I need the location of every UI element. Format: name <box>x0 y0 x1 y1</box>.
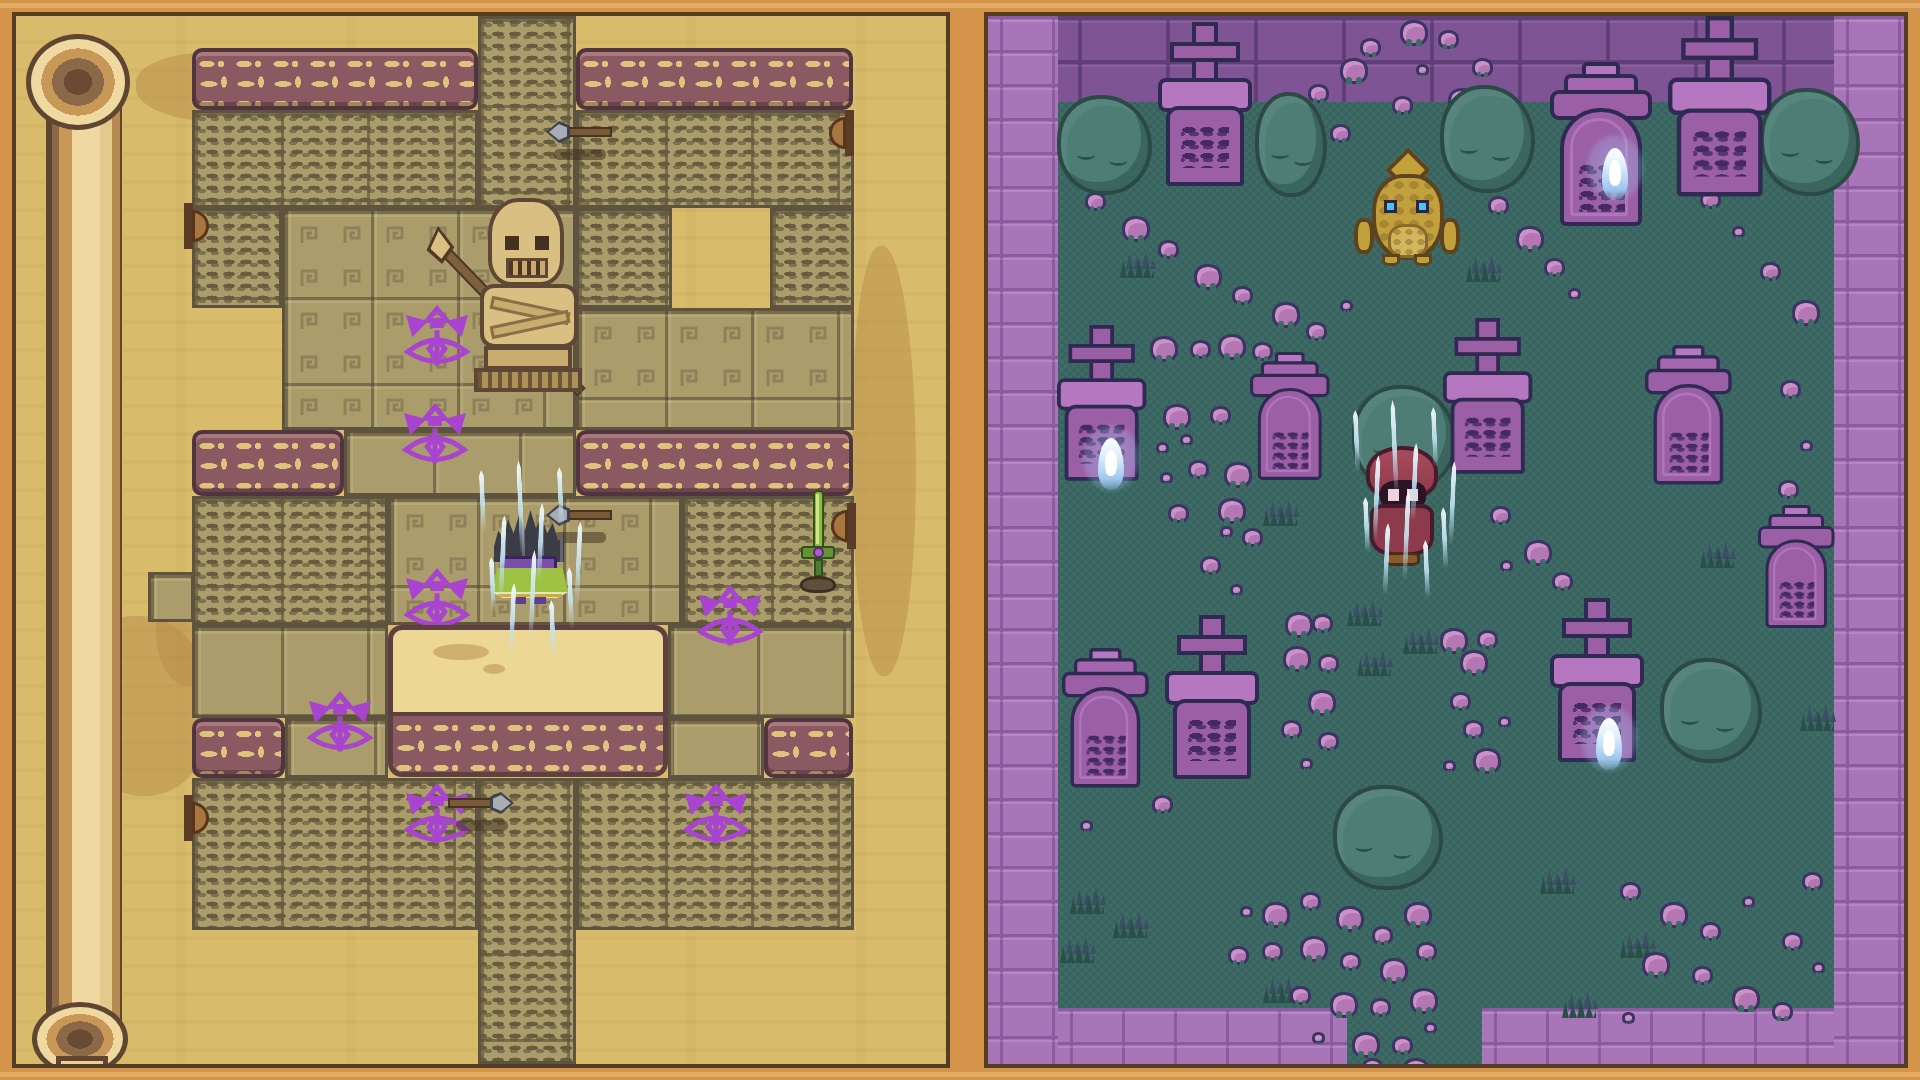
temple-map-panel[interactable] <box>12 12 950 1068</box>
cross-horizontal <box>1562 618 1632 638</box>
mushroom <box>1220 526 1233 538</box>
mushroom <box>1552 572 1573 591</box>
grass-tuft-shadow <box>1568 987 1598 1009</box>
hieroglyph-wall-band <box>576 430 853 496</box>
grave-slab <box>1677 108 1763 196</box>
mushroom <box>1156 442 1169 454</box>
grave-slab <box>1173 699 1251 779</box>
meander-icon <box>342 268 362 288</box>
meander-icon <box>299 268 319 288</box>
mushroom <box>1210 406 1231 425</box>
scroll-roll-top <box>26 34 130 130</box>
grass-tuft <box>1700 542 1738 568</box>
graveyard-wall <box>1058 1008 1347 1064</box>
grave-engraving <box>1693 128 1746 176</box>
arrow-head-icon <box>546 121 570 143</box>
grave-slab <box>1451 398 1525 474</box>
arrow-shadow <box>456 820 508 831</box>
meander-icon <box>679 325 699 345</box>
meander-icon <box>385 268 405 288</box>
grass-tuft <box>1466 256 1504 282</box>
grass-tuft <box>1070 888 1108 914</box>
mushroom <box>1285 612 1313 638</box>
meander-icon <box>299 311 319 331</box>
grass-tuft <box>1120 252 1158 278</box>
mushroom <box>1308 84 1329 103</box>
arrow-shadow <box>554 149 606 160</box>
grass-tuft-shadow <box>1409 623 1439 645</box>
mushroom <box>1500 560 1513 572</box>
statue-mouth <box>506 258 548 278</box>
sword-mound <box>800 576 836 593</box>
mushroom <box>1194 264 1222 290</box>
mushroom <box>1080 820 1093 832</box>
temple-floor-tiles <box>668 718 764 778</box>
mushroom <box>1163 404 1191 430</box>
eye-sigil-icon <box>297 689 383 767</box>
graveyard-wall <box>988 16 1058 1064</box>
mushroom <box>1622 1012 1635 1024</box>
gravestone-ornate <box>1250 352 1331 483</box>
statue-skirt <box>484 346 572 370</box>
mushroom <box>1168 504 1189 523</box>
gravestone-cross <box>1158 22 1258 190</box>
grass-tuft-shadow <box>1363 645 1393 667</box>
wisp-flame <box>1068 408 1154 508</box>
mushroom <box>1424 1022 1437 1034</box>
meander-icon <box>620 599 640 619</box>
platform-smudge <box>433 644 489 660</box>
cross-horizontal <box>1681 38 1758 60</box>
mushroom <box>1488 196 1509 215</box>
meander-icon <box>620 513 640 533</box>
mushroom <box>1524 540 1552 566</box>
grave-engraving <box>1181 124 1229 168</box>
mushroom <box>1340 952 1361 971</box>
frame-highlight-bottom <box>0 1072 1920 1077</box>
temple-floor-tiles <box>770 208 854 308</box>
mushroom <box>1336 906 1364 932</box>
grave-slab <box>1166 106 1244 186</box>
mushroom <box>1472 58 1493 77</box>
door-handle-knob <box>192 802 209 834</box>
door-handle-base <box>845 110 854 156</box>
meander-icon <box>593 325 613 345</box>
statue-guardian[interactable] <box>452 188 592 394</box>
meander-icon <box>808 325 828 345</box>
duck-belly <box>1388 224 1428 258</box>
bush-leaf-mark <box>1492 151 1510 161</box>
duck-wing <box>1354 218 1374 254</box>
meander-icon <box>342 225 362 245</box>
mushroom <box>1760 262 1781 281</box>
mushroom <box>1780 380 1801 399</box>
eye-sigil <box>673 781 759 859</box>
meander-icon <box>722 368 742 388</box>
grave-engraving <box>1670 430 1709 473</box>
graveyard-panel[interactable] <box>984 12 1908 1068</box>
wisp-flame <box>1566 688 1652 788</box>
mushroom <box>1812 962 1825 974</box>
mushroom <box>1380 958 1408 984</box>
cross-horizontal <box>1170 42 1240 62</box>
mushroom <box>1318 654 1339 673</box>
meander-icon <box>636 325 656 345</box>
mushroom <box>1392 1036 1413 1055</box>
duck-foot <box>1382 254 1400 266</box>
statue-torso <box>480 284 578 348</box>
statue-eye <box>535 236 549 250</box>
duck-eye <box>1416 200 1429 213</box>
hieroglyph-wall-band <box>576 48 853 110</box>
grass-tuft-shadow <box>1126 247 1156 269</box>
meander-icon <box>808 368 828 388</box>
sword-blade-highlight <box>816 494 819 544</box>
mushroom <box>1463 720 1484 739</box>
grave-engraving <box>1087 733 1126 776</box>
grass-tuft <box>1263 500 1301 526</box>
mushroom <box>1160 472 1173 484</box>
grass-tuft-shadow <box>1706 537 1736 559</box>
temple-floor-tiles <box>192 496 388 625</box>
bush-leaf-mark <box>1271 149 1289 159</box>
meander-icon <box>299 354 319 374</box>
grass-tuft-shadow <box>1806 700 1836 722</box>
grass-tuft-shadow <box>1269 495 1299 517</box>
eye-sigil-icon <box>687 583 773 661</box>
meander-icon <box>593 368 613 388</box>
mushroom <box>1262 942 1283 961</box>
bush-leaf-mark <box>1393 849 1411 859</box>
mushroom <box>1620 882 1641 901</box>
eye-sigil-icon <box>392 401 478 479</box>
sword-grip <box>814 559 823 577</box>
mushroom <box>1362 1058 1383 1068</box>
mushroom <box>1308 690 1336 716</box>
mushroom <box>1404 902 1432 928</box>
temple-floor-tiles <box>576 110 854 208</box>
cross-horizontal <box>1454 337 1521 356</box>
meander-icon <box>385 225 405 245</box>
mushroom <box>1340 300 1353 312</box>
meander-icon <box>428 268 448 288</box>
meander-icon <box>577 599 597 619</box>
cross-horizontal <box>1177 635 1247 655</box>
scroll-roll <box>46 74 122 1034</box>
eye-sigil <box>297 689 383 767</box>
grave-engraving <box>1465 415 1511 457</box>
bush <box>1660 658 1762 763</box>
mushroom <box>1416 64 1429 76</box>
mushroom <box>1312 1032 1325 1044</box>
bush-leaf-mark <box>1815 154 1833 164</box>
mushroom <box>1416 942 1437 961</box>
grave-engraving <box>1780 580 1815 618</box>
mushroom <box>1290 986 1311 1005</box>
mushroom <box>1778 480 1799 499</box>
wisp-flame <box>1572 118 1658 218</box>
mushroom <box>1800 440 1813 452</box>
hieroglyph-wall-band <box>192 48 478 110</box>
bush-leaf-mark <box>1109 156 1127 166</box>
graveyard-layer <box>988 16 1904 1064</box>
mushroom <box>1450 692 1471 711</box>
mushroom <box>1568 288 1581 300</box>
mushroom <box>1516 226 1544 252</box>
meander-icon <box>405 513 425 533</box>
wisp-flame-inner <box>1603 730 1615 756</box>
ornate-body <box>1654 384 1724 484</box>
stone-platform <box>388 625 668 777</box>
meander-icon <box>722 325 742 345</box>
hieroglyph-wall-band <box>393 712 663 772</box>
mushroom <box>1152 795 1173 814</box>
mushroom <box>1438 30 1459 49</box>
scroll-roll-tail <box>56 1056 108 1068</box>
duck-foot <box>1414 254 1432 266</box>
door-handle[interactable] <box>184 795 212 841</box>
grass-tuft <box>1562 992 1600 1018</box>
temple-floor-tiles <box>478 16 576 208</box>
arrow-projectile <box>546 122 612 142</box>
grass-tuft-shadow <box>1626 927 1656 949</box>
meander-icon <box>342 354 362 374</box>
grass-tuft <box>1347 600 1385 626</box>
bush <box>1057 95 1152 195</box>
grass-tuft <box>1357 650 1395 676</box>
bush-leaf-mark <box>1781 147 1799 157</box>
meander-icon <box>765 368 785 388</box>
wisp-flame-inner <box>1105 450 1117 476</box>
mushroom <box>1370 998 1391 1017</box>
meander-icon <box>620 556 640 576</box>
wisp-flame-inner <box>1609 160 1621 186</box>
gravestone-cross <box>1443 318 1538 478</box>
mushroom <box>1218 498 1246 524</box>
mushroom <box>1642 952 1670 978</box>
grass-tuft-shadow <box>1076 883 1106 905</box>
mushroom <box>1772 1002 1793 1021</box>
player-leg <box>534 597 546 604</box>
mushroom <box>1700 922 1721 941</box>
eye-sigil-icon <box>673 781 759 859</box>
temple-floor-tiles <box>192 110 478 208</box>
mushroom <box>1360 38 1381 57</box>
hieroglyph-wall-band <box>192 430 344 496</box>
arrow-head-fill <box>549 124 567 140</box>
temple-floor-tiles <box>576 308 854 430</box>
statue-pedestal <box>474 368 582 392</box>
door-handle[interactable] <box>184 203 212 249</box>
mushroom <box>1300 936 1328 962</box>
mushroom <box>1340 58 1368 84</box>
arrow-head-icon <box>490 792 514 814</box>
mushroom <box>1498 716 1511 728</box>
mushroom <box>1180 434 1193 446</box>
mushroom <box>1473 748 1501 774</box>
mushroom <box>1242 528 1263 547</box>
mushroom <box>1352 1032 1380 1058</box>
duck-eye <box>1384 200 1397 213</box>
mushroom <box>1306 322 1327 341</box>
grass-tuft-shadow <box>1066 932 1096 954</box>
eye-sigil <box>392 401 478 479</box>
mushroom <box>1224 462 1252 488</box>
meander-icon <box>636 368 656 388</box>
hieroglyph-wall-band <box>764 718 853 778</box>
green-sword[interactable] <box>794 490 842 596</box>
door-handle-knob <box>192 210 209 242</box>
mushroom <box>1232 286 1253 305</box>
bush <box>1255 92 1327 197</box>
mushroom <box>1372 926 1393 945</box>
hood-feet <box>1384 552 1420 566</box>
grass-tuft <box>1113 912 1151 938</box>
mushroom <box>1272 302 1300 328</box>
statue-head <box>488 198 564 286</box>
mushroom <box>1150 336 1178 362</box>
mushroom <box>1440 628 1468 654</box>
grass-tuft <box>1800 705 1838 731</box>
mushroom <box>1281 720 1302 739</box>
gravestone-ornate <box>1645 345 1733 488</box>
sword-gem <box>813 547 824 558</box>
gravestone-ornate <box>1758 505 1836 631</box>
mushroom <box>1330 124 1351 143</box>
mushroom <box>1188 460 1209 479</box>
bush-leaf-mark <box>1294 156 1312 166</box>
mushroom <box>1200 556 1221 575</box>
frame-highlight-top <box>0 3 1920 8</box>
hieroglyph-wall-band <box>192 718 285 778</box>
door-handle-knob <box>829 117 846 149</box>
mushroom <box>1732 986 1760 1012</box>
mushroom <box>1660 902 1688 928</box>
grass-tuft <box>1060 937 1098 963</box>
mushroom <box>1782 932 1803 951</box>
mushroom <box>1392 96 1413 115</box>
meander-icon <box>765 325 785 345</box>
gravestone-cross <box>1165 615 1265 783</box>
mushroom <box>1190 340 1211 359</box>
mushroom <box>1300 758 1313 770</box>
grave-engraving <box>1273 430 1309 469</box>
mushroom <box>1400 20 1428 46</box>
mushroom <box>1460 650 1488 676</box>
golden-duck-creature[interactable] <box>1352 148 1464 270</box>
grass-tuft-shadow <box>1472 251 1502 273</box>
mushroom <box>1300 892 1321 911</box>
mushroom <box>1742 896 1755 908</box>
arrow-head-fill <box>493 795 511 811</box>
bush-leaf-mark <box>1077 150 1095 160</box>
mushroom <box>1410 988 1438 1014</box>
bush-leaf-mark <box>1681 715 1699 725</box>
bush <box>1333 785 1443 890</box>
meander-icon <box>342 311 362 331</box>
ornate-body <box>1766 540 1828 629</box>
meander-icon <box>299 225 319 245</box>
mushroom <box>1283 646 1311 672</box>
mushroom <box>1312 614 1333 633</box>
temple-floor-tiles <box>148 572 194 622</box>
arrow-projectile <box>448 793 514 813</box>
duck-wing <box>1440 218 1460 254</box>
platform-smudge <box>483 664 505 674</box>
mushroom <box>1792 300 1820 326</box>
mushroom <box>1443 760 1456 772</box>
meander-icon <box>448 513 468 533</box>
door-handle-base <box>847 503 856 549</box>
grass-tuft-shadow <box>1119 907 1149 929</box>
ornate-body <box>1071 687 1141 787</box>
gravestone-cross <box>1668 16 1778 201</box>
grass-tuft <box>1403 628 1441 654</box>
grass-tuft <box>1540 868 1578 894</box>
gravestone-ornate <box>1062 648 1150 791</box>
meander-icon <box>299 397 319 417</box>
meander-icon <box>514 397 534 417</box>
mushroom <box>1330 992 1358 1018</box>
mushroom <box>1692 966 1713 985</box>
grave-engraving <box>1188 717 1236 761</box>
bush-leaf-mark <box>1355 842 1373 852</box>
mushroom <box>1228 946 1249 965</box>
ornate-body <box>1258 388 1322 480</box>
grass-tuft-shadow <box>1353 595 1383 617</box>
mushroom <box>1490 506 1511 525</box>
temple-map-layer <box>16 16 946 1064</box>
mushroom <box>1218 334 1246 360</box>
mushroom <box>1240 906 1253 918</box>
mushroom <box>1402 1058 1430 1068</box>
grass-tuft-shadow <box>1546 863 1576 885</box>
mushroom <box>1477 630 1498 649</box>
mushroom <box>1318 732 1339 751</box>
mushroom <box>1122 216 1150 242</box>
statue-eye <box>505 236 519 250</box>
mushroom <box>1262 902 1290 928</box>
mushroom <box>1802 872 1823 891</box>
eye-sigil <box>687 583 773 661</box>
door-handle[interactable] <box>826 110 854 156</box>
cross-horizontal <box>1068 344 1135 363</box>
mushroom <box>1158 240 1179 259</box>
bush-leaf-mark <box>1716 722 1734 732</box>
mushroom <box>1544 258 1565 277</box>
mushroom <box>1732 226 1745 238</box>
meander-icon <box>679 368 699 388</box>
meander-icon <box>342 397 362 417</box>
mushroom <box>1230 584 1243 596</box>
